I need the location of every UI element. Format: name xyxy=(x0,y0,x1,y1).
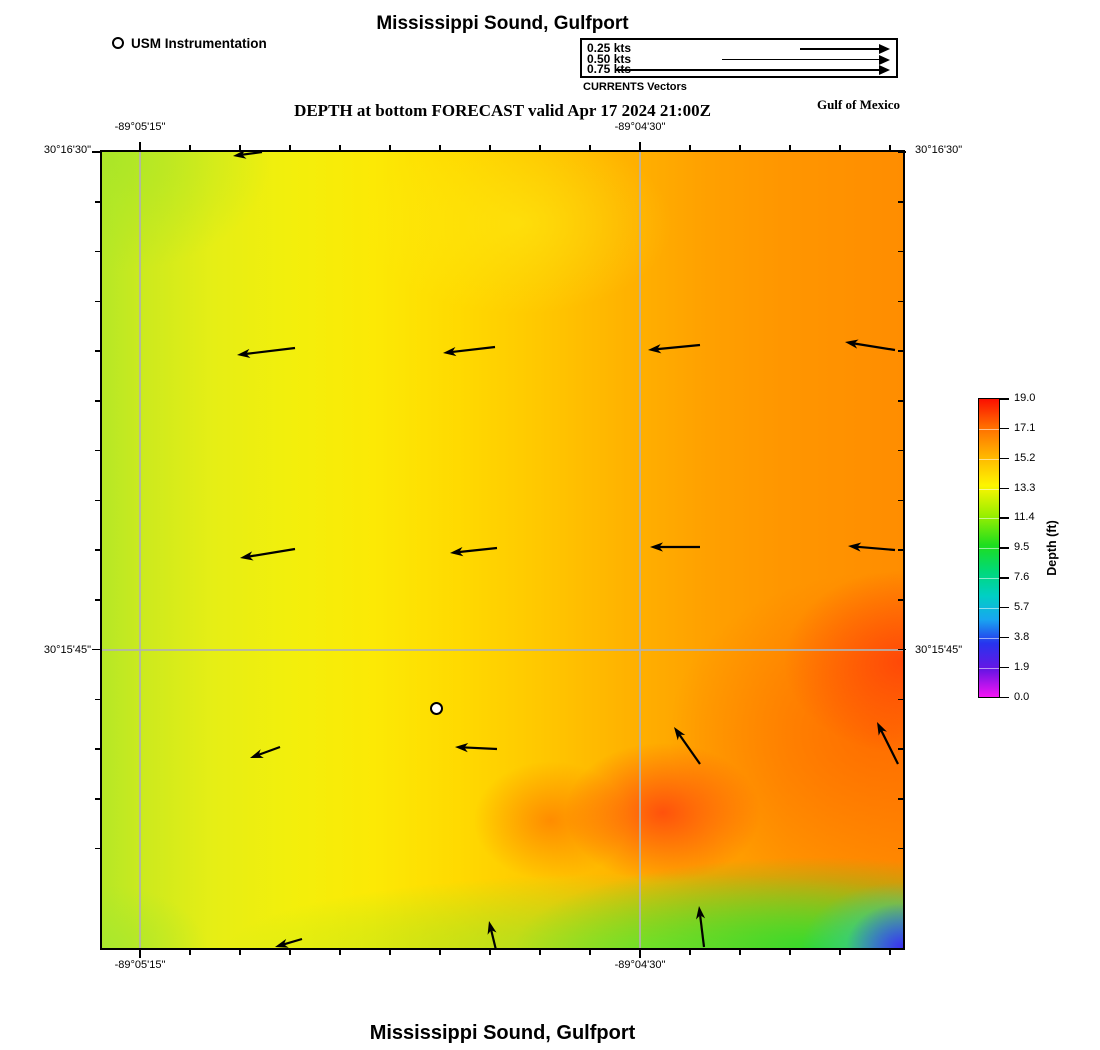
page-title: Mississippi Sound, Gulfport xyxy=(100,13,905,35)
region-label: Gulf of Mexico xyxy=(760,97,900,113)
axis-tick xyxy=(898,748,903,750)
colorbar-inner-tick xyxy=(979,608,999,609)
colorbar-inner-tick xyxy=(979,518,999,519)
axis-tick xyxy=(95,201,100,203)
axis-tick xyxy=(898,599,903,601)
axis-tick xyxy=(898,201,903,203)
colorbar-tick xyxy=(1000,607,1009,609)
axis-tick xyxy=(95,500,100,502)
axis-tick xyxy=(898,549,903,551)
axis-tick xyxy=(898,649,906,651)
axis-tick xyxy=(439,950,441,955)
axis-tick xyxy=(639,142,641,150)
axis-tick xyxy=(489,145,491,150)
axis-tick xyxy=(589,950,591,955)
lon-label-top-west: -89°05'15" xyxy=(70,121,210,133)
lat-label-left-north: 30°16'30" xyxy=(0,144,91,156)
axis-tick xyxy=(739,145,741,150)
axis-tick xyxy=(95,699,100,701)
colorbar-tick xyxy=(1000,577,1009,579)
axis-tick xyxy=(539,950,541,955)
axis-tick xyxy=(95,798,100,800)
axis-tick xyxy=(839,145,841,150)
colorbar-inner-tick xyxy=(979,668,999,669)
axis-tick xyxy=(289,145,291,150)
colorbar-tick xyxy=(1000,697,1009,699)
axis-tick xyxy=(92,649,100,651)
axis-tick xyxy=(539,145,541,150)
axis-tick xyxy=(639,950,641,958)
colorbar-tick-label: 17.1 xyxy=(1014,422,1035,434)
axis-tick xyxy=(889,145,891,150)
axis-tick xyxy=(95,549,100,551)
colorbar-inner-tick xyxy=(979,638,999,639)
map-plot-area xyxy=(100,150,905,950)
colorbar-inner-tick xyxy=(979,459,999,460)
currents-legend-caption: CURRENTS Vectors xyxy=(583,81,687,93)
axis-tick xyxy=(95,251,100,253)
axis-tick xyxy=(439,145,441,150)
axis-tick xyxy=(339,145,341,150)
vector-scale-arrow-icon xyxy=(722,55,890,65)
axis-tick xyxy=(139,142,141,150)
colorbar-tick xyxy=(1000,637,1009,639)
colorbar-inner-tick xyxy=(979,548,999,549)
axis-tick xyxy=(898,450,903,452)
axis-tick xyxy=(898,699,903,701)
axis-tick xyxy=(898,350,903,352)
page-title-bottom: Mississippi Sound, Gulfport xyxy=(100,1022,905,1045)
axis-tick xyxy=(789,145,791,150)
vector-scale-arrow-icon xyxy=(800,44,890,54)
axis-tick xyxy=(898,400,903,402)
colorbar-tick xyxy=(1000,547,1009,549)
colorbar-tick xyxy=(1000,428,1009,430)
vector-scale-arrow-icon xyxy=(616,65,890,75)
axis-tick xyxy=(489,950,491,955)
axis-tick xyxy=(898,151,906,153)
lat-label-left-south: 30°15'45" xyxy=(0,644,91,656)
axis-tick xyxy=(898,798,903,800)
axis-tick xyxy=(95,599,100,601)
axis-tick xyxy=(289,950,291,955)
colorbar-tick-label: 9.5 xyxy=(1014,541,1029,553)
axis-tick xyxy=(739,950,741,955)
colorbar-tick-label: 0.0 xyxy=(1014,691,1029,703)
colorbar-tick xyxy=(1000,398,1009,400)
axis-tick xyxy=(898,251,903,253)
colorbar-tick xyxy=(1000,667,1009,669)
axis-tick xyxy=(689,950,691,955)
station-marker-icon xyxy=(112,37,124,49)
axis-tick xyxy=(139,950,141,958)
axis-tick xyxy=(95,350,100,352)
axis-tick xyxy=(92,151,100,153)
axis-tick xyxy=(95,848,100,850)
colorbar-tick-label: 3.8 xyxy=(1014,631,1029,643)
axis-tick xyxy=(898,301,903,303)
colorbar-tick-label: 1.9 xyxy=(1014,661,1029,673)
colorbar-inner-tick xyxy=(979,489,999,490)
axis-tick xyxy=(789,950,791,955)
colorbar-tick-label: 7.6 xyxy=(1014,571,1029,583)
lon-label-bottom-west: -89°05'15" xyxy=(70,959,210,971)
axis-tick xyxy=(389,145,391,150)
colorbar-inner-tick xyxy=(979,578,999,579)
axis-tick xyxy=(898,500,903,502)
station-legend-label: USM Instrumentation xyxy=(131,36,267,51)
lat-label-right-south: 30°15'45" xyxy=(915,644,962,656)
colorbar-tick xyxy=(1000,517,1009,519)
colorbar-tick-label: 5.7 xyxy=(1014,601,1029,613)
axis-tick xyxy=(239,950,241,955)
axis-tick xyxy=(189,950,191,955)
axis-tick xyxy=(898,848,903,850)
colorbar-inner-tick xyxy=(979,429,999,430)
lon-label-top-east: -89°04'30" xyxy=(570,121,710,133)
lon-label-bottom-east: -89°04'30" xyxy=(570,959,710,971)
axis-tick-layer xyxy=(102,152,903,948)
axis-tick xyxy=(95,400,100,402)
axis-tick xyxy=(589,145,591,150)
depth-colorbar xyxy=(978,398,1000,698)
colorbar-tick-label: 11.4 xyxy=(1014,511,1035,523)
colorbar-tick-label: 13.3 xyxy=(1014,482,1035,494)
axis-tick xyxy=(95,301,100,303)
axis-tick xyxy=(189,145,191,150)
colorbar-tick-label: 19.0 xyxy=(1014,392,1035,404)
axis-tick xyxy=(889,950,891,955)
colorbar-title: Depth (ft) xyxy=(1045,488,1059,608)
colorbar-tick-label: 15.2 xyxy=(1014,452,1035,464)
axis-tick xyxy=(839,950,841,955)
axis-tick xyxy=(689,145,691,150)
colorbar-tick xyxy=(1000,488,1009,490)
axis-tick xyxy=(239,145,241,150)
axis-tick xyxy=(95,450,100,452)
lat-label-right-north: 30°16'30" xyxy=(915,144,962,156)
axis-tick xyxy=(339,950,341,955)
axis-tick xyxy=(389,950,391,955)
colorbar-tick xyxy=(1000,458,1009,460)
forecast-plot-page: Mississippi Sound, Gulfport USM Instrume… xyxy=(0,0,1100,1050)
currents-vector-legend: 0.25 kts 0.50 kts 0.75 kts xyxy=(580,38,898,78)
axis-tick xyxy=(95,748,100,750)
